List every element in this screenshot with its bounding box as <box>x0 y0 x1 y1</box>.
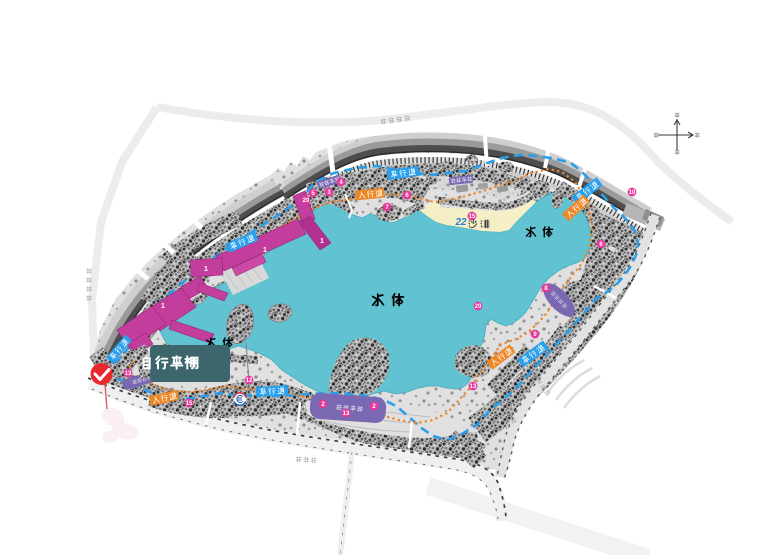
svg-text:13: 13 <box>470 384 477 390</box>
svg-text:1: 1 <box>263 247 267 254</box>
svg-text:15: 15 <box>186 401 193 407</box>
svg-text:22: 22 <box>454 217 467 228</box>
svg-text:15: 15 <box>469 214 476 220</box>
svg-text:10: 10 <box>629 190 636 196</box>
svg-text:1: 1 <box>320 238 324 245</box>
svg-text:1: 1 <box>161 303 165 310</box>
svg-text:20: 20 <box>475 304 482 310</box>
svg-text:1: 1 <box>204 266 208 273</box>
svg-text:13: 13 <box>125 371 132 377</box>
svg-text:12: 12 <box>246 378 253 384</box>
svg-text:20: 20 <box>303 198 310 204</box>
svg-text:13: 13 <box>343 411 350 417</box>
